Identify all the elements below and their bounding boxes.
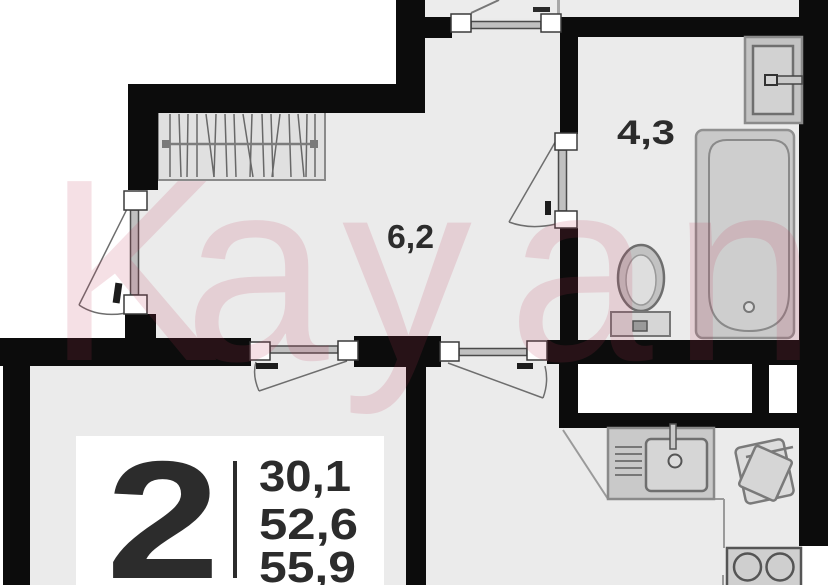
svg-text:2: 2: [106, 426, 220, 585]
svg-text:52,6: 52,6: [259, 500, 358, 549]
svg-text:Kayan: Kayan: [46, 126, 817, 417]
svg-text:55,9: 55,9: [259, 543, 356, 585]
svg-text:30,1: 30,1: [259, 452, 351, 501]
